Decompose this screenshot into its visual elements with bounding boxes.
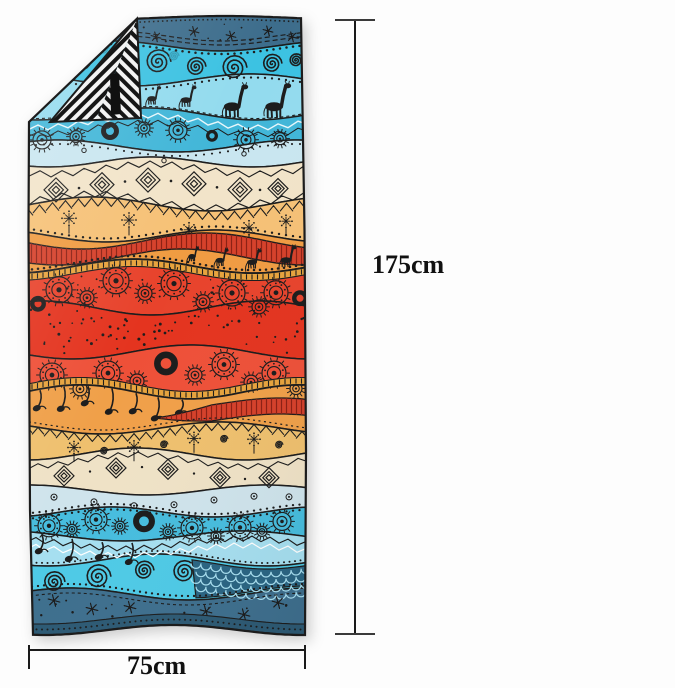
height-dimension-cap-bottom	[335, 633, 375, 635]
height-dimension-label: 175cm	[372, 252, 444, 278]
height-dimension-cap-top	[335, 19, 375, 21]
width-dimension-label: 75cm	[127, 653, 186, 679]
width-dimension-tick-right	[304, 645, 306, 669]
height-dimension-line	[354, 20, 356, 634]
towel-illustration	[24, 10, 309, 645]
width-dimension-tick-left	[28, 645, 30, 669]
folded-corner	[50, 19, 141, 122]
product-dimension-image: 175cm 75cm	[0, 0, 675, 688]
spiral-motif	[37, 54, 57, 72]
star-motif	[47, 31, 57, 41]
star-motif	[81, 35, 91, 45]
